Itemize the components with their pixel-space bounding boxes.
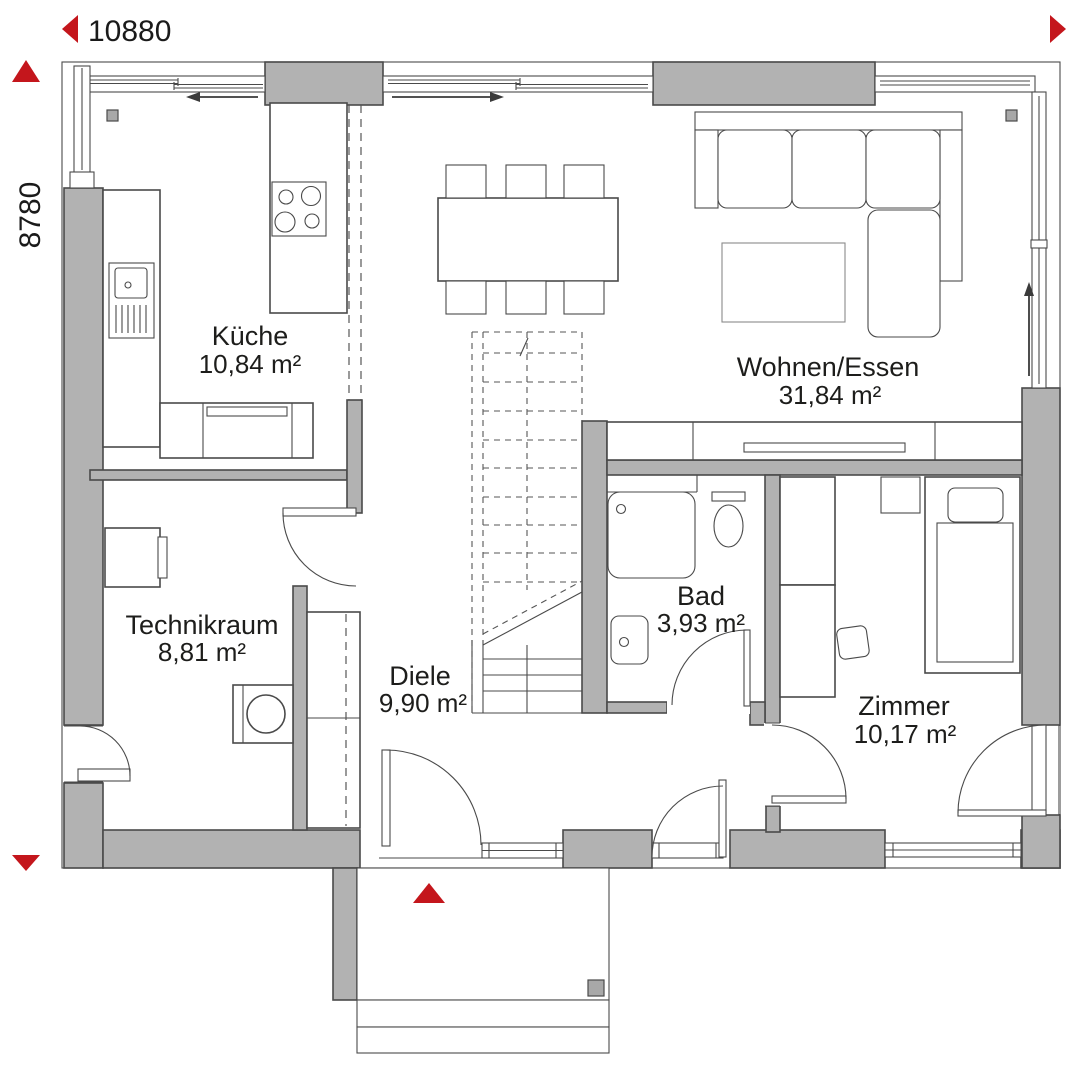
porch-step	[357, 1027, 609, 1053]
wall-bottom-left	[103, 830, 360, 868]
porch-slab	[357, 868, 609, 1000]
dim-arrow-up-icon	[12, 60, 40, 82]
kitchen-furniture	[103, 103, 361, 458]
room-label-diele: Diele	[389, 661, 451, 691]
wall-stairs	[582, 421, 607, 713]
chair	[446, 281, 486, 314]
boiler-unit	[105, 528, 167, 587]
shower	[608, 492, 695, 578]
zimmer-door-swing	[772, 725, 846, 799]
dim-arrow-down-icon	[12, 855, 40, 871]
wardrobe	[780, 477, 835, 585]
wall-right-upper	[1022, 388, 1060, 725]
toilet	[712, 492, 745, 547]
wall-bad-zimmer	[765, 475, 780, 725]
window-right-slider	[1024, 92, 1047, 388]
dim-arrow-right-icon	[1050, 15, 1066, 43]
desk	[780, 585, 835, 697]
kitchen-sink	[109, 263, 154, 338]
post-marker	[107, 110, 118, 121]
technikraum-exterior-door	[64, 726, 130, 782]
kitchen-opening-dashed	[349, 105, 361, 400]
tv	[744, 443, 905, 452]
wall-left-lower	[64, 783, 103, 868]
wall-technik-diele	[293, 586, 307, 830]
cooktop	[272, 182, 326, 236]
wall-kueche-stub	[347, 400, 362, 513]
room-label-kueche: Küche	[212, 321, 289, 351]
window-left-corner	[70, 66, 94, 188]
floor-plan-page: 10880 8780 Küche 10,84 m² Wohnen/Essen 3…	[0, 0, 1080, 1080]
wall-wohnen-south	[607, 460, 1022, 475]
room-label-technikraum: Technikraum	[125, 610, 278, 640]
wall-bad-south	[607, 702, 667, 713]
dim-top-label: 10880	[88, 15, 171, 48]
nightstand	[881, 477, 920, 513]
bed	[925, 477, 1020, 673]
front-door	[379, 750, 482, 867]
room-label-wohnen: Wohnen/Essen	[737, 352, 920, 382]
wall-bottom-mid	[563, 830, 652, 868]
wall-top-right-block	[653, 62, 875, 105]
hall-wardrobe	[307, 612, 360, 828]
wall-bad-south-stub	[750, 702, 765, 725]
room-area-diele: 9,90 m²	[379, 688, 467, 718]
room-area-technikraum: 8,81 m²	[158, 637, 246, 667]
post-marker	[1006, 110, 1017, 121]
room-area-wohnen: 31,84 m²	[779, 380, 882, 410]
bad-door-swing	[672, 630, 747, 705]
room-area-zimmer: 10,17 m²	[854, 719, 957, 749]
washbasin	[611, 616, 648, 664]
floor-plan-drawing: 10880 8780 Küche 10,84 m² Wohnen/Essen 3…	[0, 0, 1080, 1080]
chair	[564, 281, 604, 314]
coffee-table	[722, 243, 845, 322]
chair	[446, 165, 486, 198]
wall-left-upper	[64, 188, 103, 725]
washing-machine	[233, 685, 293, 743]
technikraum-exterior-door-leaf	[78, 769, 130, 781]
entrance-porch	[357, 868, 609, 1053]
dining-table	[438, 198, 618, 281]
wall-top-left-block	[265, 62, 383, 105]
porch-side-wall	[333, 868, 357, 1000]
zimmer-door-leaf	[772, 796, 846, 803]
window-zimmer-bottom	[885, 843, 1021, 857]
room-label-bad: Bad	[677, 581, 725, 611]
dining-furniture	[438, 165, 618, 314]
diele-terrace-door-leaf	[719, 780, 726, 857]
chair	[564, 165, 604, 198]
technikraum-door-swing	[283, 513, 356, 586]
dim-left-label: 8780	[14, 182, 47, 249]
window-top-right	[875, 76, 1035, 92]
zimmer-terrace-door	[958, 725, 1060, 816]
dim-arrow-left-icon	[62, 15, 78, 43]
mattress	[937, 523, 1013, 662]
room-label-zimmer: Zimmer	[858, 691, 949, 721]
bedroom-furniture	[780, 477, 1020, 697]
bad-door-leaf	[744, 630, 750, 706]
pillow	[948, 488, 1003, 522]
slide-arrow-left-icon	[186, 92, 200, 102]
window-kueche-top	[88, 76, 265, 102]
room-area-bad: 3,93 m²	[657, 608, 745, 638]
doors	[64, 508, 1060, 867]
window-wohnen-top	[383, 76, 653, 102]
porch-post	[588, 980, 604, 996]
zimmer-door	[764, 723, 846, 806]
chair	[506, 165, 546, 198]
wall-right-lower	[1022, 815, 1060, 868]
wall-kueche-technik	[90, 470, 347, 480]
porch-step	[357, 1000, 609, 1027]
front-door-leaf	[382, 750, 390, 846]
technikraum-door-leaf	[283, 508, 356, 516]
slide-arrow-right-icon	[490, 92, 504, 102]
wall-bottom-right	[730, 830, 885, 868]
technikraum-door	[283, 508, 356, 586]
desk-chair	[836, 625, 870, 660]
zimmer-terrace-door-leaf	[958, 810, 1046, 816]
staircase	[472, 332, 582, 713]
chair	[506, 281, 546, 314]
entrance-sidelight	[482, 843, 563, 858]
kitchen-bench	[160, 403, 313, 458]
room-area-kueche: 10,84 m²	[199, 349, 302, 379]
wall-stub-zimmer	[766, 806, 780, 832]
diele-terrace-door	[652, 780, 729, 867]
sideboard-tv	[607, 422, 1022, 460]
bad-door	[667, 630, 750, 714]
